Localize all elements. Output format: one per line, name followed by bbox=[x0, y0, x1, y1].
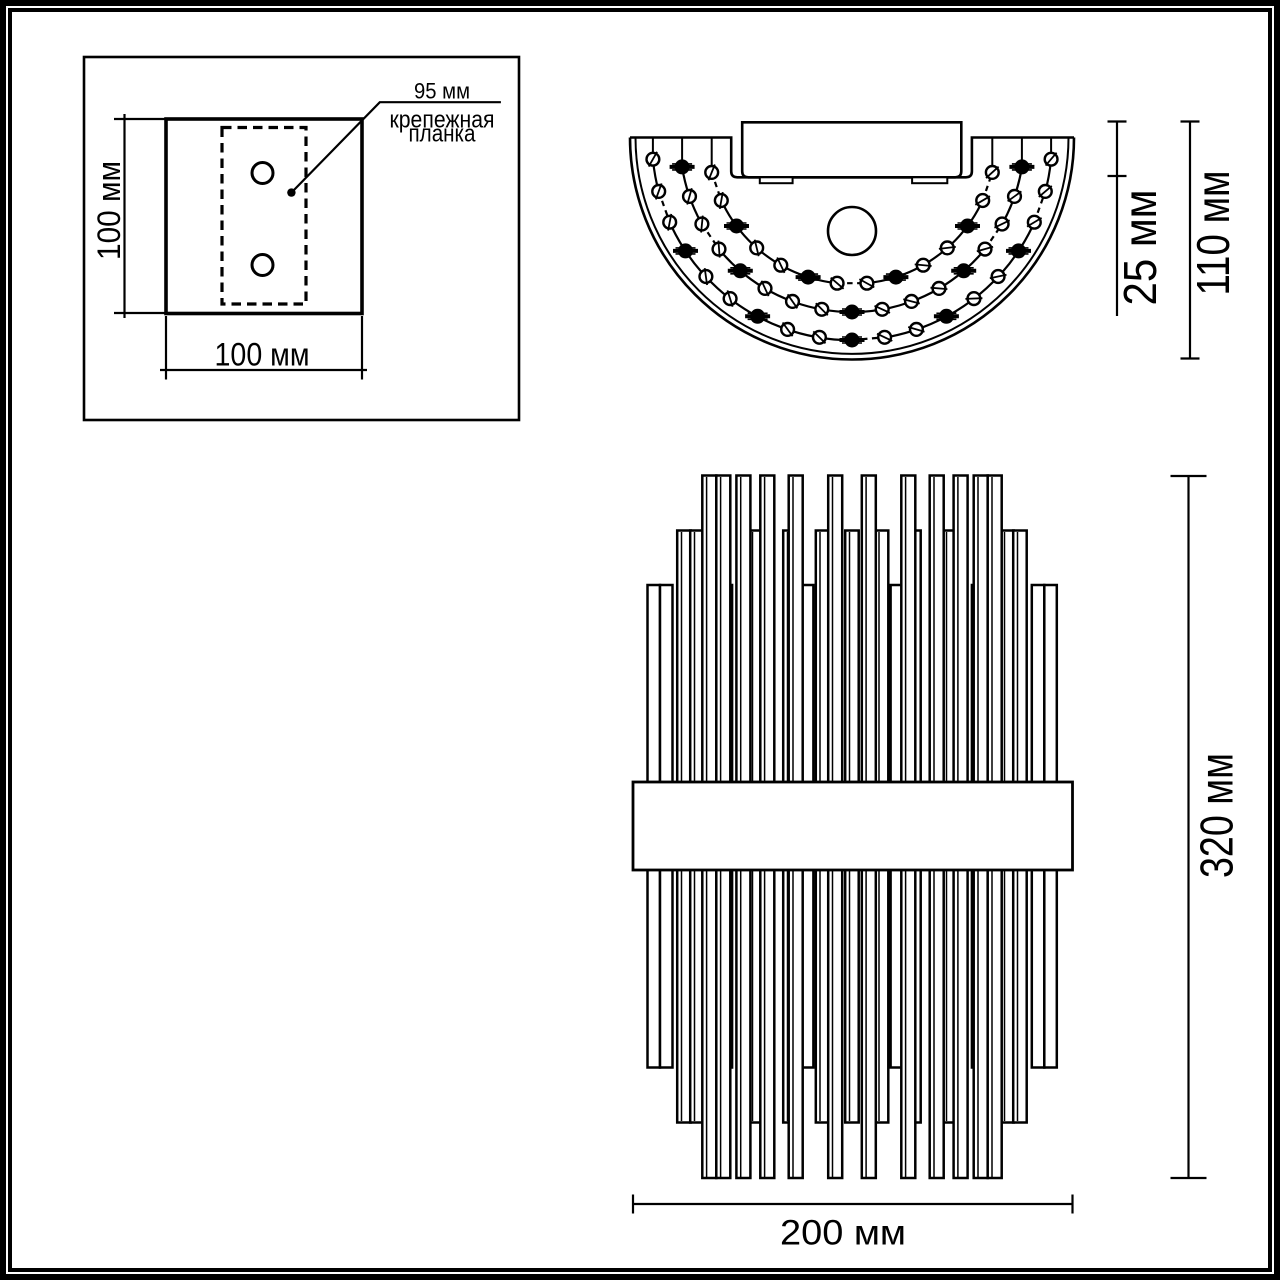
svg-text:110 мм: 110 мм bbox=[1187, 171, 1239, 296]
svg-text:25 мм: 25 мм bbox=[1114, 190, 1166, 306]
svg-text:200 мм: 200 мм bbox=[780, 1213, 906, 1253]
svg-text:100 мм: 100 мм bbox=[91, 161, 127, 260]
svg-text:планка: планка bbox=[409, 121, 477, 148]
svg-text:320 мм: 320 мм bbox=[1191, 753, 1243, 878]
svg-text:95 мм: 95 мм bbox=[414, 79, 470, 104]
svg-text:100 мм: 100 мм bbox=[215, 337, 310, 373]
